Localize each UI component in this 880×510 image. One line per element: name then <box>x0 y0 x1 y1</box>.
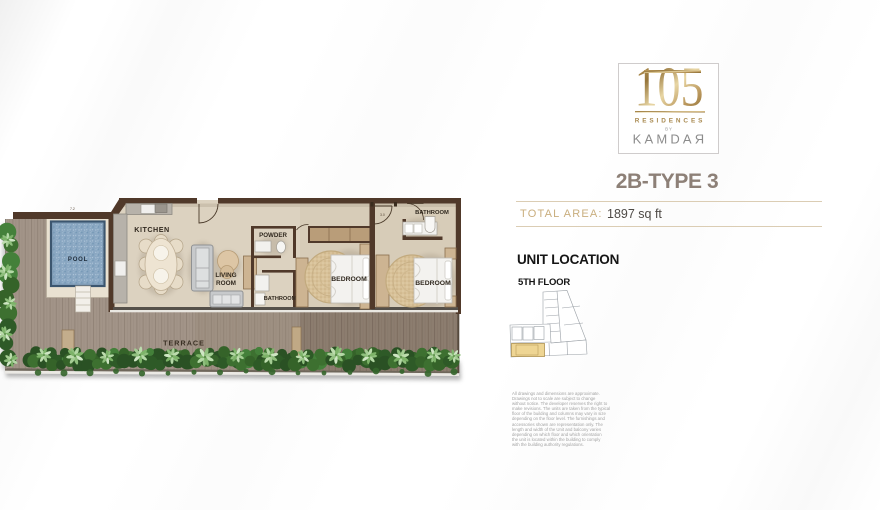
svg-text:LIVING: LIVING <box>215 272 236 279</box>
svg-text:BEDROOM: BEDROOM <box>415 280 451 287</box>
svg-text:BATHROOM: BATHROOM <box>415 210 449 216</box>
svg-text:POWDER: POWDER <box>259 232 287 239</box>
svg-text:ROOM: ROOM <box>216 280 236 287</box>
svg-text:POOL: POOL <box>68 257 88 263</box>
svg-text:RESIDENCES: RESIDENCES <box>635 118 706 125</box>
svg-text:7.2: 7.2 <box>70 207 75 211</box>
svg-text:KITCHEN: KITCHEN <box>134 225 169 234</box>
svg-text:BATHROOM: BATHROOM <box>264 296 297 302</box>
svg-text:TERRACE: TERRACE <box>163 339 205 348</box>
svg-text:KAMDAЯ: KAMDAЯ <box>633 132 708 147</box>
svg-text:3.0: 3.0 <box>380 213 385 217</box>
svg-text:BEDROOM: BEDROOM <box>331 276 367 283</box>
